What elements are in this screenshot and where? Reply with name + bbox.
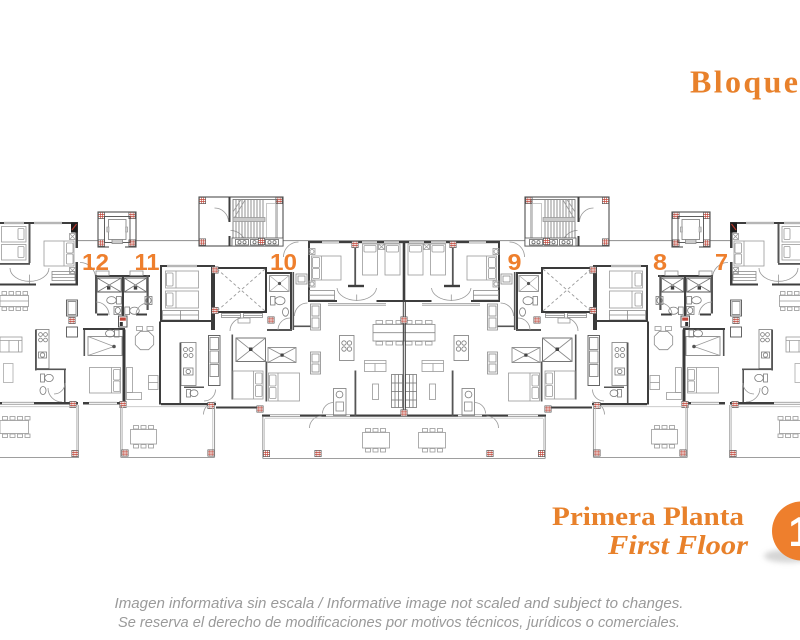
svg-text:11: 11 [135,249,160,275]
svg-text:1: 1 [788,508,800,555]
svg-text:8: 8 [653,249,667,275]
svg-text:9: 9 [508,249,522,275]
svg-text:Imagen informativa sin escala: Imagen informativa sin escala / Informat… [115,596,684,612]
svg-text:First Floor: First Floor [607,530,749,560]
svg-text:Se reserva el derecho de modif: Se reserva el derecho de modificaciones … [118,615,680,631]
svg-text:7: 7 [715,249,728,275]
svg-text:Primera Planta: Primera Planta [552,502,744,531]
svg-text:10: 10 [270,249,297,275]
svg-text:12: 12 [82,249,109,275]
